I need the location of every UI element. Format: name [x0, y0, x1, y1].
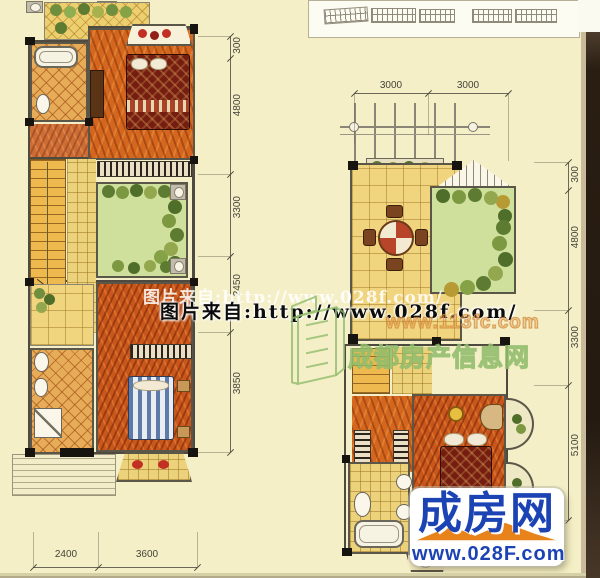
entry-steps	[12, 454, 116, 496]
dim-line	[33, 567, 197, 568]
dim-tick	[194, 564, 201, 571]
dim-guide	[428, 93, 429, 135]
bathtub-icon	[354, 520, 404, 548]
wall-block	[342, 455, 350, 463]
dim-line	[230, 36, 231, 452]
dim-label: 4800	[233, 94, 243, 116]
column-cap	[170, 184, 186, 200]
watermark-site-name: 成都房产信息网	[348, 338, 530, 374]
wall-block	[25, 278, 34, 286]
sink-icon	[396, 474, 412, 490]
sink-icon	[34, 352, 49, 372]
table-icon	[378, 220, 414, 256]
dim-guide	[98, 532, 99, 567]
nightstand	[177, 426, 190, 438]
wall-block	[25, 448, 35, 457]
pergola-beam	[340, 134, 490, 135]
dim-guide	[198, 174, 230, 175]
dim-guide	[197, 532, 198, 567]
wall-block	[348, 161, 358, 170]
sink-icon	[36, 94, 50, 114]
wall-block	[342, 548, 352, 556]
dim-guide	[198, 256, 230, 257]
plants-icon	[512, 414, 522, 424]
dim-guide	[198, 332, 230, 333]
watermark-site-url: www.113fc.com	[386, 312, 540, 334]
wall-block	[85, 118, 93, 126]
hallway-upper	[30, 124, 88, 157]
dim-label: 5100	[571, 434, 581, 456]
roof-tile-strip	[419, 9, 455, 23]
pillow-icon	[131, 58, 148, 70]
dim-guide	[198, 36, 230, 37]
column-cap	[26, 1, 43, 13]
dim-tick	[565, 517, 572, 524]
dim-guide	[534, 162, 568, 163]
chair-icon	[386, 258, 403, 271]
plants-icon	[102, 185, 115, 198]
chair-icon	[363, 229, 376, 246]
dim-guide	[198, 452, 230, 453]
roof-tile-strip	[472, 9, 512, 23]
dim-label: 3850	[233, 372, 243, 394]
dim-label: 300	[233, 37, 243, 54]
plants-icon	[112, 260, 124, 272]
roof-tile-strip	[515, 9, 557, 23]
wall-block	[190, 24, 198, 34]
wall-block	[190, 156, 198, 164]
flower-box-icon	[138, 29, 147, 38]
plants-icon	[436, 189, 450, 203]
wardrobe	[90, 70, 104, 118]
pillow-icon	[133, 380, 169, 391]
wardrobe-strip	[130, 344, 192, 359]
pillow-icon	[467, 433, 487, 446]
round-bay-window	[506, 398, 534, 450]
wall-block	[188, 448, 198, 457]
pillow-icon	[150, 58, 167, 70]
dim-guide	[534, 310, 568, 311]
scanned-floorplan-page: 300 4800 3300 2450 3850 2400 3600 3000 3…	[0, 0, 600, 578]
dim-label: 300	[571, 166, 581, 183]
dim-label: 3000	[450, 81, 486, 91]
wall-block	[25, 37, 35, 45]
flower-box-icon	[132, 460, 143, 469]
bed-throw	[127, 100, 189, 112]
bathtub-icon	[34, 46, 78, 68]
wall-block	[60, 448, 94, 457]
roof-tile-strip	[324, 6, 369, 24]
dim-label: 3300	[233, 196, 243, 218]
dim-guide	[354, 93, 355, 143]
pillow-icon	[444, 433, 464, 446]
dim-label: 2400	[48, 550, 84, 560]
dim-guide	[508, 93, 509, 161]
dim-guide	[534, 385, 568, 386]
logo-title: 成房网	[414, 491, 560, 537]
dim-label: 3600	[129, 550, 165, 560]
plants-icon	[50, 4, 62, 16]
page-edge-dark	[586, 0, 600, 578]
dim-label: 3300	[571, 326, 581, 348]
pergola	[354, 103, 474, 163]
toilet-icon	[34, 378, 48, 397]
watermark-site-logo-icon	[282, 293, 348, 391]
closet-strip	[97, 161, 192, 177]
nightstand	[177, 380, 190, 392]
logo-url: www.028F.com	[412, 543, 562, 566]
chair-icon	[415, 229, 428, 246]
bay-window	[126, 24, 192, 46]
dim-line	[568, 162, 569, 520]
dim-guide	[33, 532, 34, 567]
roof-tile-strip	[371, 8, 416, 23]
plants-icon	[512, 478, 522, 488]
ceiling-lamp-icon	[448, 406, 464, 422]
pergola-joint	[468, 122, 478, 132]
dim-line	[354, 93, 508, 94]
plants-icon	[34, 288, 45, 299]
shower-icon	[34, 408, 62, 438]
chair-icon	[386, 205, 403, 218]
plants-icon	[168, 200, 182, 214]
chaise-icon	[480, 404, 503, 430]
toilet-icon	[354, 492, 371, 517]
wall-block	[25, 118, 34, 126]
dim-label: 4800	[571, 226, 581, 248]
dim-label: 3000	[373, 81, 409, 91]
plants-icon	[496, 220, 511, 235]
bay-window	[116, 452, 192, 482]
dim-tick	[227, 449, 234, 456]
wall-block	[452, 161, 462, 170]
page-corner-white	[578, 0, 600, 32]
column-cap	[170, 258, 186, 274]
